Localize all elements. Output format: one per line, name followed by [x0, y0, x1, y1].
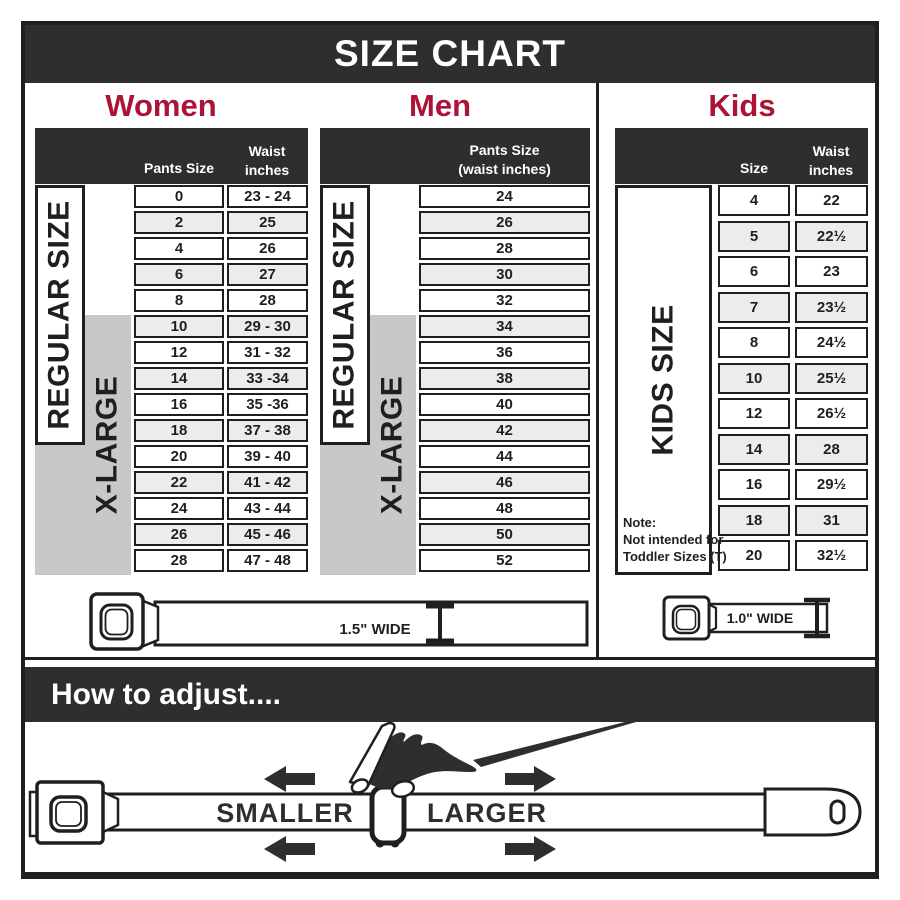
table-cell: 4 [134, 237, 224, 260]
table-row: 824½ [718, 327, 868, 358]
table-row: 44 [419, 445, 590, 468]
table-cell: 10 [718, 363, 790, 394]
adult-belt-width-label: 1.5" WIDE [339, 621, 410, 638]
table-cell: 24½ [795, 327, 868, 358]
table-cell: 36 [419, 341, 590, 364]
table-cell: 6 [134, 263, 224, 286]
table-cell: 23 [795, 256, 868, 287]
table-cell: 16 [134, 393, 224, 416]
table-cell: 25½ [795, 363, 868, 394]
table-row: 627 [134, 263, 308, 286]
table-cell: 29½ [795, 469, 868, 500]
size-chart-page: SIZE CHART Women Men Kids Pants Size Wai… [0, 0, 900, 900]
table-row: 1226½ [718, 398, 868, 429]
kids-note-line2: Not intended for [623, 532, 727, 549]
kids-note-line3: Toddler Sizes (T) [623, 549, 727, 566]
table-row: 1029 - 30 [134, 315, 308, 338]
section-divider [596, 83, 599, 657]
men-col-header: Pants Size (waist inches) [419, 128, 590, 184]
women-table: Pants Size Waist inches REGULAR SIZE X-L… [35, 128, 308, 575]
table-cell: 28 [227, 289, 308, 312]
table-row: 2847 - 48 [134, 549, 308, 572]
women-heading: Women [61, 86, 261, 126]
table-cell: 22 [134, 471, 224, 494]
chart-frame: SIZE CHART Women Men Kids Pants Size Wai… [21, 21, 879, 879]
table-cell: 26 [134, 523, 224, 546]
table-cell: 52 [419, 549, 590, 572]
women-table-header: Pants Size Waist inches [35, 128, 308, 184]
table-cell: 6 [718, 256, 790, 287]
table-cell: 33 -34 [227, 367, 308, 390]
table-row: 38 [419, 367, 590, 390]
table-row: 225 [134, 211, 308, 234]
men-col-header-line1: Pants Size [469, 141, 539, 160]
table-cell: 32½ [795, 540, 868, 571]
table-cell: 12 [718, 398, 790, 429]
adjust-belt-latch [103, 792, 118, 832]
kids-size-box: KIDS SIZE Note: Not intended for Toddler… [615, 185, 712, 575]
table-cell: 24 [134, 497, 224, 520]
kids-note-line1: Note: [623, 515, 727, 532]
table-row: 2241 - 42 [134, 471, 308, 494]
table-cell: 38 [419, 367, 590, 390]
women-xlarge-label: X-LARGE [91, 376, 125, 515]
adjust-band: How to adjust.... [25, 667, 875, 722]
table-row: 30 [419, 263, 590, 286]
men-xlarge-box: X-LARGE [369, 315, 416, 575]
table-cell: 25 [227, 211, 308, 234]
kids-belt-width-label: 1.0" WIDE [727, 610, 794, 626]
adult-belt-illustration: 1.5" WIDE [85, 588, 590, 654]
table-cell: 12 [134, 341, 224, 364]
table-row: 1629½ [718, 469, 868, 500]
table-row: 32 [419, 289, 590, 312]
adult-belt-buckle [91, 594, 143, 649]
table-row: 34 [419, 315, 590, 338]
women-rows: 023 - 242254266278281029 - 301231 - 3214… [134, 185, 308, 575]
kids-table: Size Waist inches KIDS SIZE Note: Not in… [615, 128, 868, 575]
kids-table-header: Size Waist inches [615, 128, 868, 184]
table-row: 1428 [718, 434, 868, 465]
table-row: 28 [419, 237, 590, 260]
table-cell: 35 -36 [227, 393, 308, 416]
table-cell: 10 [134, 315, 224, 338]
kids-belt-illustration: 1.0" WIDE [660, 592, 840, 644]
men-xlarge-label: X-LARGE [376, 376, 410, 515]
men-xlarge-bracket-extension [320, 445, 370, 575]
table-cell: 22 [795, 185, 868, 216]
table-row: 50 [419, 523, 590, 546]
men-regular-size-box: REGULAR SIZE [320, 185, 370, 445]
table-cell: 5 [718, 221, 790, 252]
table-cell: 26 [419, 211, 590, 234]
table-row: 2032½ [718, 540, 868, 571]
belt-tip-slot-icon [831, 801, 844, 823]
women-xlarge-box: X-LARGE [84, 315, 131, 575]
arrow-right-top-icon [505, 766, 556, 792]
kids-rows: 422522½623723½824½1025½1226½14281629½183… [718, 185, 868, 575]
table-cell: 7 [718, 292, 790, 323]
chart-content: SIZE CHART Women Men Kids Pants Size Wai… [25, 25, 875, 872]
table-cell: 0 [134, 185, 224, 208]
table-cell: 44 [419, 445, 590, 468]
table-cell: 18 [134, 419, 224, 442]
table-cell: 45 - 46 [227, 523, 308, 546]
table-cell: 4 [718, 185, 790, 216]
arrow-right-bottom-icon [505, 836, 556, 862]
table-cell: 40 [419, 393, 590, 416]
smaller-label: SMALLER [216, 798, 354, 828]
men-col-header-line2: (waist inches) [458, 160, 551, 179]
table-row: 2645 - 46 [134, 523, 308, 546]
table-cell: 20 [718, 540, 790, 571]
table-cell: 28 [419, 237, 590, 260]
table-cell: 28 [795, 434, 868, 465]
table-cell: 31 [795, 505, 868, 536]
table-row: 828 [134, 289, 308, 312]
table-row: 1433 -34 [134, 367, 308, 390]
table-row: 1025½ [718, 363, 868, 394]
table-cell: 41 - 42 [227, 471, 308, 494]
table-row: 24 [419, 185, 590, 208]
kids-note: Note: Not intended for Toddler Sizes (T) [623, 515, 727, 566]
table-row: 023 - 24 [134, 185, 308, 208]
tables-bottom-border [25, 657, 875, 660]
kids-size-label: KIDS SIZE [647, 304, 681, 455]
men-heading: Men [340, 86, 540, 126]
table-cell: 16 [718, 469, 790, 500]
men-regular-size-label: REGULAR SIZE [328, 200, 362, 429]
kids-heading: Kids [642, 86, 842, 126]
table-row: 36 [419, 341, 590, 364]
table-cell: 32 [419, 289, 590, 312]
page-title: SIZE CHART [334, 33, 566, 75]
table-cell: 31 - 32 [227, 341, 308, 364]
table-cell: 22½ [795, 221, 868, 252]
arrow-left-bottom-icon [264, 836, 315, 862]
table-cell: 14 [718, 434, 790, 465]
women-regular-size-box: REGULAR SIZE [35, 185, 85, 445]
table-row: 422 [718, 185, 868, 216]
table-cell: 18 [718, 505, 790, 536]
table-cell: 24 [419, 185, 590, 208]
table-row: 723½ [718, 292, 868, 323]
table-row: 40 [419, 393, 590, 416]
table-row: 42 [419, 419, 590, 442]
men-rows: 242628303234363840424446485052 [419, 185, 590, 575]
table-cell: 26 [227, 237, 308, 260]
adjust-illustration: SMALLER LARGER [25, 722, 875, 873]
table-cell: 27 [227, 263, 308, 286]
table-cell: 50 [419, 523, 590, 546]
table-cell: 14 [134, 367, 224, 390]
table-cell: 23 - 24 [227, 185, 308, 208]
table-cell: 30 [419, 263, 590, 286]
adjust-belt-buckle [37, 782, 103, 843]
women-xlarge-bracket-extension [35, 445, 85, 575]
loose-belt-end [473, 722, 636, 767]
table-cell: 43 - 44 [227, 497, 308, 520]
table-row: 48 [419, 497, 590, 520]
table-row: 26 [419, 211, 590, 234]
table-cell: 28 [134, 549, 224, 572]
table-cell: 20 [134, 445, 224, 468]
table-cell: 42 [419, 419, 590, 442]
women-col-waist-inches: Waist inches [235, 142, 299, 180]
table-cell: 8 [134, 289, 224, 312]
table-row: 2443 - 44 [134, 497, 308, 520]
table-cell: 26½ [795, 398, 868, 429]
table-cell: 34 [419, 315, 590, 338]
table-cell: 46 [419, 471, 590, 494]
table-row: 1837 - 38 [134, 419, 308, 442]
women-col-pants-size: Pants Size [134, 159, 224, 178]
title-band: SIZE CHART [25, 25, 875, 83]
kids-col-size: Size [718, 159, 790, 178]
table-cell: 8 [718, 327, 790, 358]
table-row: 623 [718, 256, 868, 287]
table-row: 1635 -36 [134, 393, 308, 416]
women-regular-size-label: REGULAR SIZE [43, 200, 77, 429]
table-row: 2039 - 40 [134, 445, 308, 468]
table-cell: 29 - 30 [227, 315, 308, 338]
adjust-heading: How to adjust.... [51, 678, 281, 712]
table-row: 1831 [718, 505, 868, 536]
table-row: 52 [419, 549, 590, 572]
table-cell: 37 - 38 [227, 419, 308, 442]
men-table: Pants Size (waist inches) REGULAR SIZE X… [320, 128, 590, 575]
table-row: 522½ [718, 221, 868, 252]
table-cell: 47 - 48 [227, 549, 308, 572]
men-table-header: Pants Size (waist inches) [320, 128, 590, 184]
belt-tip [765, 789, 860, 835]
larger-label: LARGER [427, 798, 547, 828]
table-cell: 23½ [795, 292, 868, 323]
table-cell: 48 [419, 497, 590, 520]
table-cell: 2 [134, 211, 224, 234]
table-row: 1231 - 32 [134, 341, 308, 364]
arrow-left-top-icon [264, 766, 315, 792]
kids-col-waist-inches: Waist inches [801, 142, 861, 180]
table-cell: 39 - 40 [227, 445, 308, 468]
table-row: 426 [134, 237, 308, 260]
table-row: 46 [419, 471, 590, 494]
